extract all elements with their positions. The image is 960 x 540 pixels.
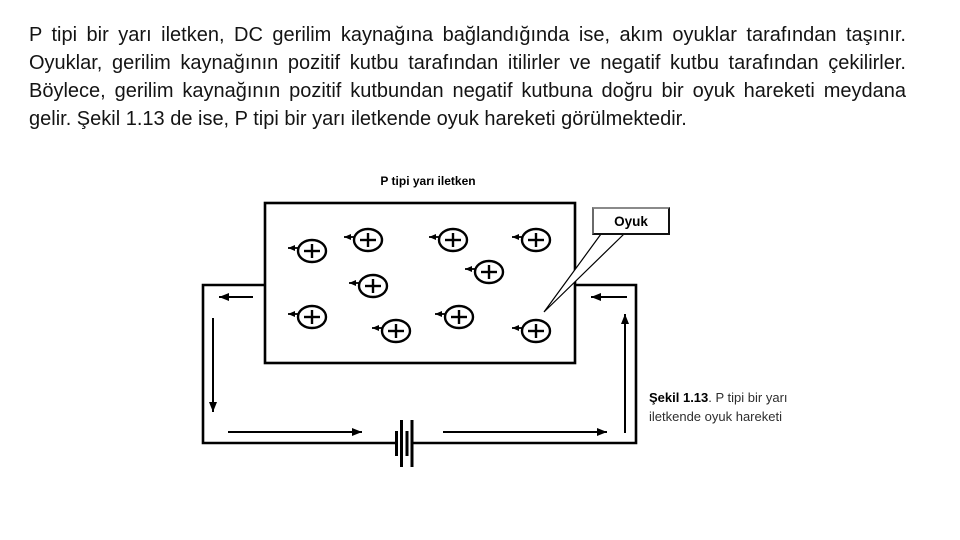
figure-caption-number: Şekil 1.13 bbox=[649, 390, 708, 405]
callout-oyuk-box: Oyuk bbox=[592, 207, 670, 235]
figure-caption: Şekil 1.13. P tipi bir yarı iletkende oy… bbox=[649, 388, 821, 426]
hole-movement-circuit-diagram bbox=[0, 0, 960, 540]
callout-oyuk-label: Oyuk bbox=[614, 214, 648, 229]
battery-icon bbox=[397, 420, 413, 467]
slide-canvas: P tipi bir yarı iletken, DC gerilim kayn… bbox=[0, 0, 960, 540]
diagram-title: P tipi yarı iletken bbox=[363, 174, 493, 188]
